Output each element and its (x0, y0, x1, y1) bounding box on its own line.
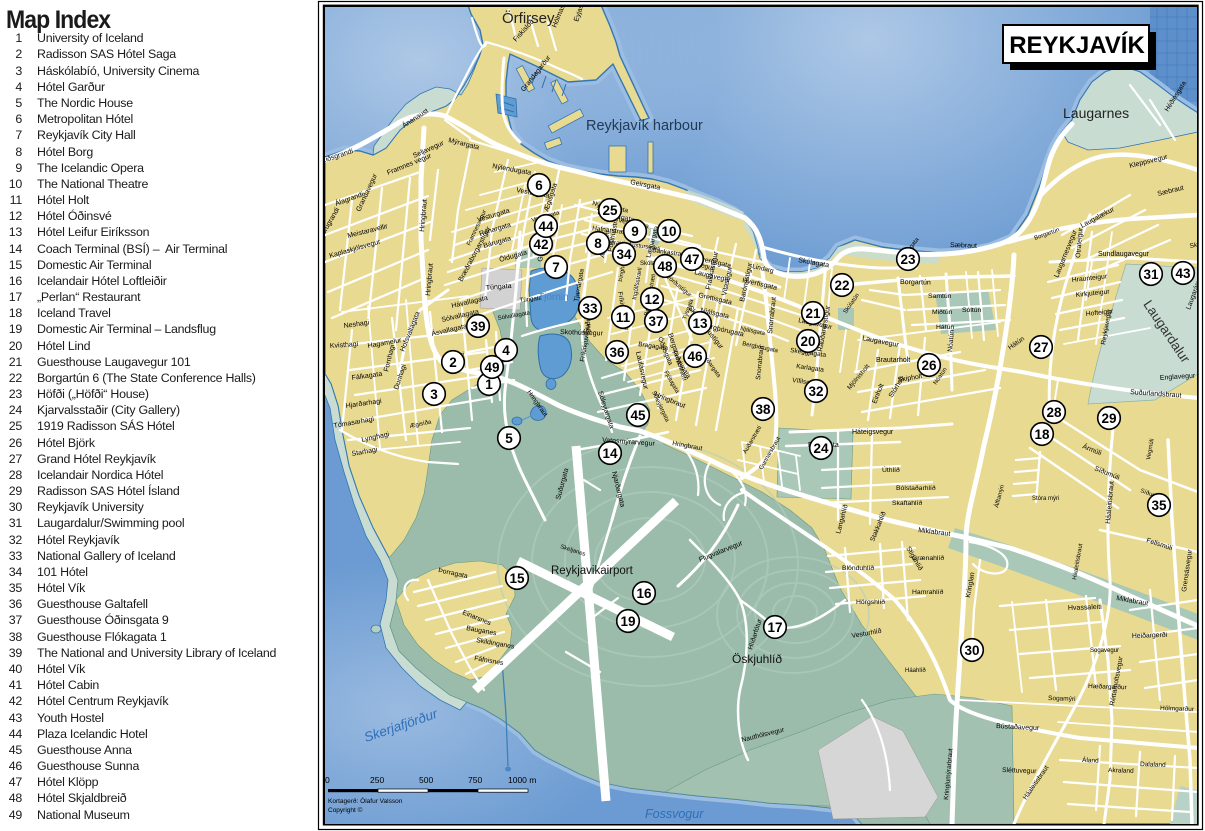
svg-text:Hörgshlíð: Hörgshlíð (856, 598, 885, 606)
svg-text:8: 8 (594, 236, 602, 251)
svg-text:Samtún: Samtún (928, 293, 952, 300)
svg-text:35: 35 (1151, 498, 1167, 513)
svg-text:25: 25 (602, 203, 618, 218)
svg-text:Örfirsey: Örfirsey (502, 9, 555, 27)
svg-text:37: 37 (648, 314, 663, 329)
svg-text:10: 10 (661, 224, 676, 239)
svg-text:29: 29 (1101, 411, 1116, 426)
svg-text:Heiðargerði: Heiðargerði (1132, 631, 1168, 640)
svg-text:Hvassaleiti: Hvassaleiti (1068, 604, 1103, 612)
svg-text:Hamrahlíð: Hamrahlíð (912, 588, 944, 596)
svg-text:34: 34 (616, 247, 632, 262)
svg-text:Brautarholt: Brautarholt (876, 357, 910, 364)
svg-text:Sundlaugavegur: Sundlaugavegur (1098, 251, 1150, 258)
svg-text:3: 3 (430, 387, 438, 402)
svg-text:Hátún: Hátún (936, 324, 954, 331)
svg-text:Akraland: Akraland (1108, 767, 1134, 775)
svg-text:42: 42 (533, 237, 548, 252)
svg-text:18: 18 (1034, 427, 1050, 442)
svg-text:49: 49 (484, 360, 499, 375)
svg-text:36: 36 (609, 345, 625, 360)
svg-text:250: 250 (370, 775, 384, 785)
svg-text:Fossvogur: Fossvogur (645, 807, 704, 821)
svg-text:11: 11 (616, 310, 631, 325)
svg-text:32: 32 (808, 384, 823, 399)
svg-text:6: 6 (535, 178, 543, 193)
svg-text:500: 500 (419, 775, 433, 785)
svg-text:30: 30 (964, 643, 979, 658)
svg-text:33: 33 (582, 301, 598, 316)
svg-text:Háahlíð: Háahlíð (905, 667, 926, 674)
svg-text:12: 12 (644, 292, 659, 307)
svg-text:39: 39 (470, 319, 485, 334)
svg-text:Öskjuhlíð: Öskjuhlíð (732, 652, 782, 666)
svg-text:Háteigsvegur: Háteigsvegur (852, 429, 894, 436)
svg-text:28: 28 (1046, 405, 1062, 420)
svg-text:20: 20 (800, 334, 815, 349)
svg-text:15: 15 (509, 571, 525, 586)
svg-text:Hólmgarður: Hólmgarður (1160, 704, 1195, 713)
svg-text:31: 31 (1143, 267, 1159, 282)
svg-text:Hæðargarður: Hæðargarður (1088, 682, 1128, 691)
svg-text:1000 m: 1000 m (508, 775, 536, 785)
svg-text:17: 17 (767, 620, 782, 635)
svg-text:27: 27 (1033, 340, 1048, 355)
svg-text:Dalaland: Dalaland (1140, 761, 1166, 769)
svg-text:Bólstaðarhlíð: Bólstaðarhlíð (896, 484, 936, 492)
svg-text:43: 43 (1175, 266, 1191, 281)
svg-text:5: 5 (505, 431, 513, 446)
svg-text:4: 4 (502, 343, 510, 358)
svg-text:Reykjavík harbour: Reykjavík harbour (586, 118, 703, 134)
svg-text:13: 13 (692, 316, 708, 331)
svg-text:14: 14 (602, 446, 618, 461)
svg-text:Kortagerð: Ólafur Valsson: Kortagerð: Ólafur Valsson (328, 796, 403, 805)
svg-text:48: 48 (657, 259, 673, 274)
svg-text:47: 47 (684, 252, 699, 267)
svg-text:22: 22 (834, 278, 849, 293)
svg-text:Laugarnes: Laugarnes (1063, 105, 1129, 121)
svg-text:24: 24 (813, 441, 829, 456)
svg-text:0: 0 (325, 775, 330, 785)
svg-text:REYKJAVÍK: REYKJAVÍK (1009, 31, 1145, 59)
svg-text:46: 46 (687, 349, 703, 364)
svg-text:Borgartún: Borgartún (900, 279, 931, 287)
svg-text:Skaftahlíð: Skaftahlíð (892, 499, 922, 507)
svg-text:Sóltún: Sóltún (962, 307, 981, 314)
svg-text:Blönduhlíð: Blönduhlíð (842, 564, 874, 572)
svg-text:Miðtún: Miðtún (932, 308, 953, 316)
svg-text:23: 23 (900, 252, 916, 267)
svg-text:Úthlíð: Úthlíð (882, 465, 900, 474)
svg-text:44: 44 (538, 219, 554, 234)
svg-text:Sogavegur: Sogavegur (1090, 648, 1119, 654)
svg-text:7: 7 (552, 260, 560, 275)
svg-text:Sogamýri: Sogamýri (1048, 695, 1076, 703)
svg-text:21: 21 (805, 306, 821, 321)
svg-text:Grænahlíð: Grænahlíð (912, 554, 944, 562)
svg-text:Tjörnin: Tjörnin (538, 292, 569, 303)
svg-text:19: 19 (620, 614, 635, 629)
svg-text:9: 9 (631, 224, 639, 239)
svg-text:38: 38 (755, 402, 771, 417)
svg-text:Sléttuvegur: Sléttuvegur (1002, 767, 1037, 775)
svg-text:750: 750 (468, 775, 482, 785)
svg-text:26: 26 (921, 358, 937, 373)
svg-text:Reykjavikairport: Reykjavikairport (551, 565, 634, 577)
svg-text:2: 2 (449, 355, 457, 370)
svg-text:Stóra mýri: Stóra mýri (1032, 496, 1059, 502)
svg-text:Copyright ©: Copyright © (328, 806, 363, 814)
svg-text:45: 45 (630, 408, 646, 423)
svg-text:Sæbraut: Sæbraut (950, 242, 977, 250)
svg-text:16: 16 (636, 586, 652, 601)
